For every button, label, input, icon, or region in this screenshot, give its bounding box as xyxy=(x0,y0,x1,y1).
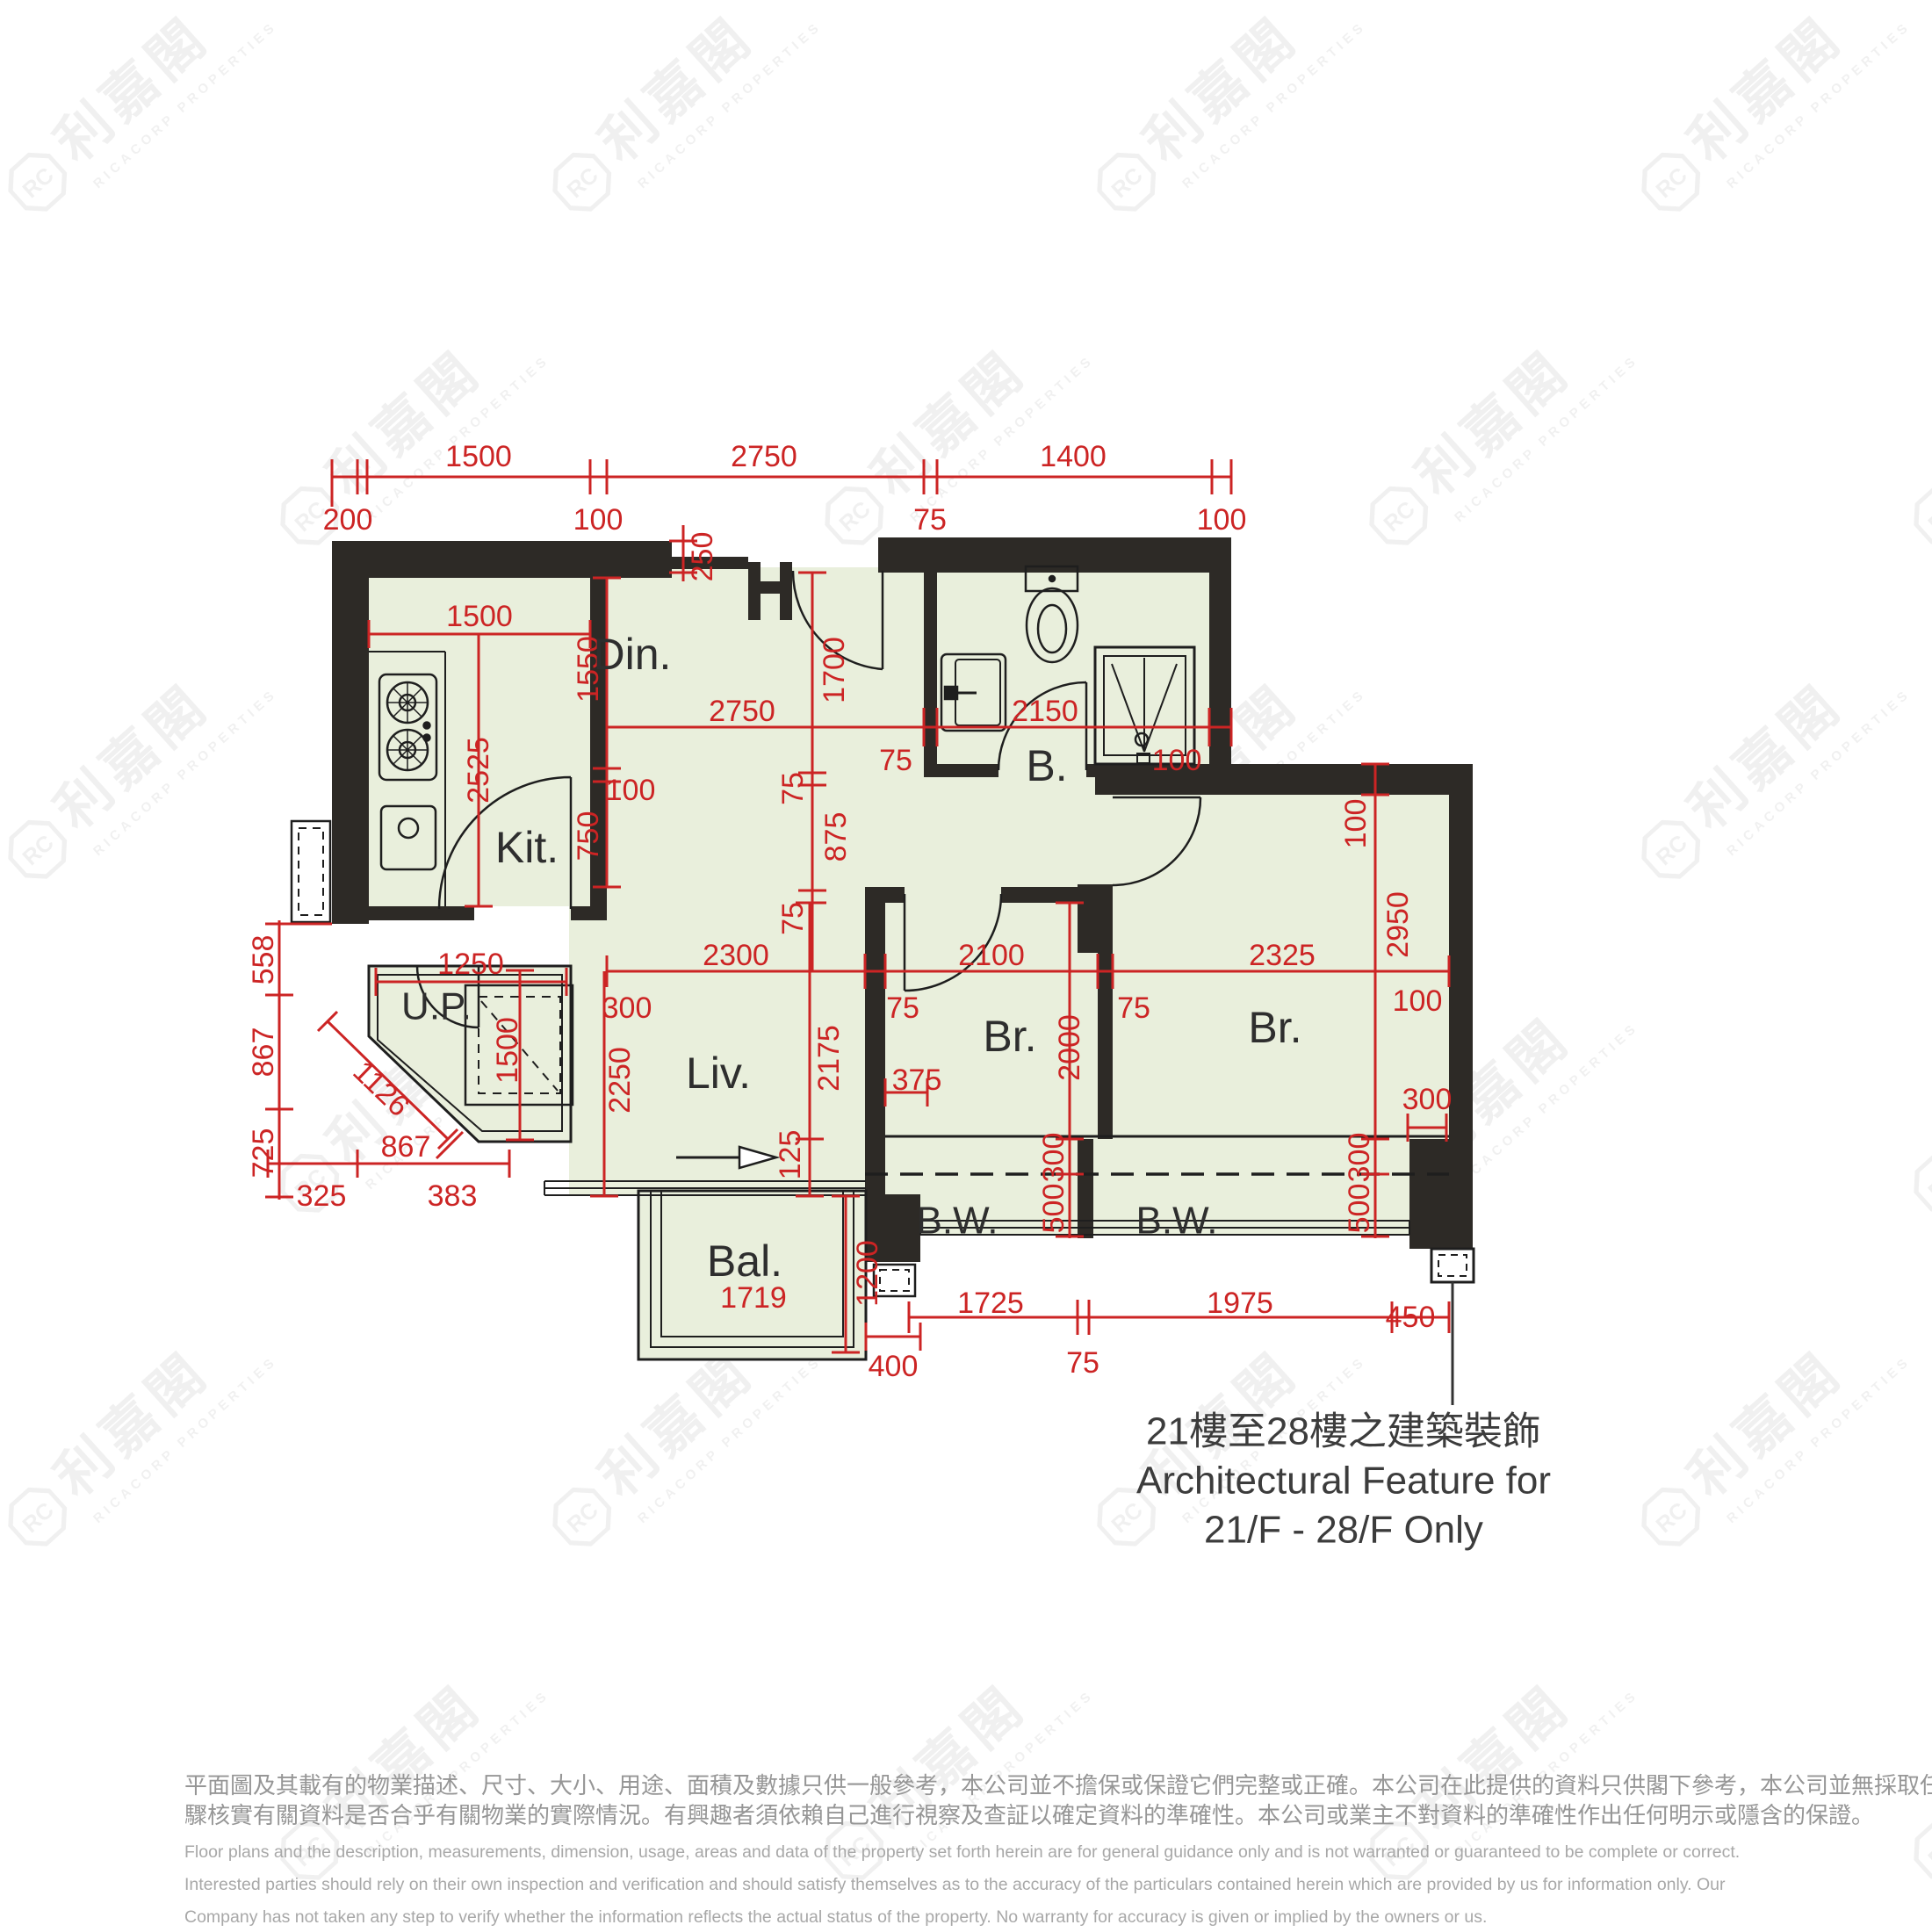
disclaimer: 平面圖及其載有的物業描述、尺寸、大小、用途、面積及數據只供一般參考，本公司並不擔… xyxy=(184,1770,1774,1928)
annotation: 21樓至28樓之建築裝飾 Architectural Feature for 2… xyxy=(1136,1282,1551,1552)
dimension-label: 875 xyxy=(819,812,853,862)
dimension-label: 375 xyxy=(892,1063,942,1097)
dim-balcony-400 xyxy=(866,1323,920,1351)
dimension-label: 75 xyxy=(1117,991,1150,1025)
room-label-living: Liv. xyxy=(686,1049,751,1098)
dimension-label: 75 xyxy=(776,902,810,935)
dimension-label: 250 xyxy=(686,532,719,582)
dimension-label: 2325 xyxy=(1249,939,1316,972)
dimension-label: 75 xyxy=(879,744,912,777)
floor-plan-page: RC利嘉閣RICACORP PROPERTIESRC利嘉閣RICACORP PR… xyxy=(0,0,1932,1932)
room-label-bay-window-right: B.W. xyxy=(1136,1200,1218,1243)
dimension-label: 125 xyxy=(774,1130,807,1180)
dimension-label: 100 xyxy=(573,503,624,537)
dimension-label: 383 xyxy=(428,1179,478,1213)
dimension-label: 2525 xyxy=(462,737,495,804)
dimension-label: 100 xyxy=(1197,503,1247,537)
dimension-label: 300 xyxy=(1402,1083,1453,1116)
dimension-label: 325 xyxy=(297,1179,347,1213)
dimension-label: 400 xyxy=(869,1350,919,1383)
dimension-label: 300 xyxy=(1037,1133,1071,1183)
architectural-feature-box-dashed xyxy=(1438,1255,1467,1276)
dimension-label: 100 xyxy=(1152,744,1202,777)
floor-corridor xyxy=(924,777,1113,887)
dimension-label: 725 xyxy=(247,1128,280,1179)
dimension-label: 1725 xyxy=(957,1287,1024,1320)
dimension-label: 2175 xyxy=(812,1025,846,1092)
dimension-label: 867 xyxy=(247,1027,280,1078)
dimension-label: 500 xyxy=(1037,1184,1071,1234)
dimension-label: 300 xyxy=(1343,1133,1376,1183)
dimension-label: 558 xyxy=(247,935,280,985)
disclaimer-en-line1: Floor plans and the description, measure… xyxy=(184,1842,1774,1863)
dimension-label: 75 xyxy=(886,991,919,1025)
room-label-bedroom-left: Br. xyxy=(983,1012,1036,1061)
room-label-bedroom-right: Br. xyxy=(1248,1003,1301,1052)
ac-platform-left xyxy=(292,821,330,922)
dimension-label: 1400 xyxy=(1040,440,1107,473)
dimension-label: 1700 xyxy=(818,637,851,703)
disclaimer-zh-line2: 驟核實有關資料是否合乎有關物業的實際情況。有興趣者須依賴自己進行視察及查証以確定… xyxy=(184,1800,1774,1830)
dimension-label: 1200 xyxy=(851,1240,884,1307)
room-label-bay-window-left: B.W. xyxy=(917,1200,998,1243)
room-label-utility-platform: U.P. xyxy=(401,985,472,1028)
dimension-label: 100 xyxy=(1393,984,1443,1018)
room-label-kitchen: Kit. xyxy=(495,823,559,872)
annotation-line-en2: 21/F - 28/F Only xyxy=(1204,1509,1483,1552)
dimension-label: 2150 xyxy=(1012,695,1078,728)
room-label-dining: Din. xyxy=(594,630,672,679)
dimension-label: 2750 xyxy=(709,695,775,728)
room-label-bathroom: B. xyxy=(1026,741,1067,790)
dimension-label: 75 xyxy=(1066,1346,1099,1380)
disclaimer-zh-line1: 平面圖及其載有的物業描述、尺寸、大小、用途、面積及數據只供一般參考，本公司並不擔… xyxy=(184,1770,1774,1800)
dimension-label: 867 xyxy=(381,1130,431,1164)
annotation-line-en1: Architectural Feature for xyxy=(1136,1460,1551,1503)
ac-platform-left-dashed xyxy=(299,828,323,915)
dimension-label: 450 xyxy=(1386,1301,1436,1334)
dimension-label: 2300 xyxy=(703,939,769,972)
dimension-label: 200 xyxy=(323,503,373,537)
disclaimer-en-line2: Interested parties should rely on their … xyxy=(184,1875,1774,1895)
floor-plan-svg: 1500 2750 1400 200 100 75 100 558 867 72… xyxy=(0,0,1932,1932)
dimension-label: 1500 xyxy=(446,600,513,633)
dimension-label: 750 xyxy=(572,811,605,861)
dimension-label: 2950 xyxy=(1381,891,1415,958)
dimension-label: 100 xyxy=(1339,799,1373,849)
dimension-label: 1719 xyxy=(720,1281,787,1315)
dimension-label: 1500 xyxy=(445,440,512,473)
dimension-label: 2100 xyxy=(958,939,1025,972)
dimension-label: 2250 xyxy=(603,1047,637,1114)
dimension-label: 75 xyxy=(776,772,810,805)
annotation-line-zh: 21樓至28樓之建築裝飾 xyxy=(1146,1410,1541,1453)
dimension-label: 500 xyxy=(1343,1184,1376,1234)
dimension-label: 1250 xyxy=(437,948,504,981)
dimension-label: 1500 xyxy=(491,1017,524,1084)
room-label-balcony: Bal. xyxy=(707,1236,782,1286)
dimension-label: 100 xyxy=(606,774,656,807)
dimension-label: 300 xyxy=(602,991,652,1025)
dimension-label: 2750 xyxy=(731,440,797,473)
dimension-label: 1975 xyxy=(1207,1287,1273,1320)
dimension-label: 2000 xyxy=(1053,1014,1086,1081)
disclaimer-en-line3: Company has not taken any step to verify… xyxy=(184,1907,1774,1928)
dimension-label: 75 xyxy=(913,503,947,537)
